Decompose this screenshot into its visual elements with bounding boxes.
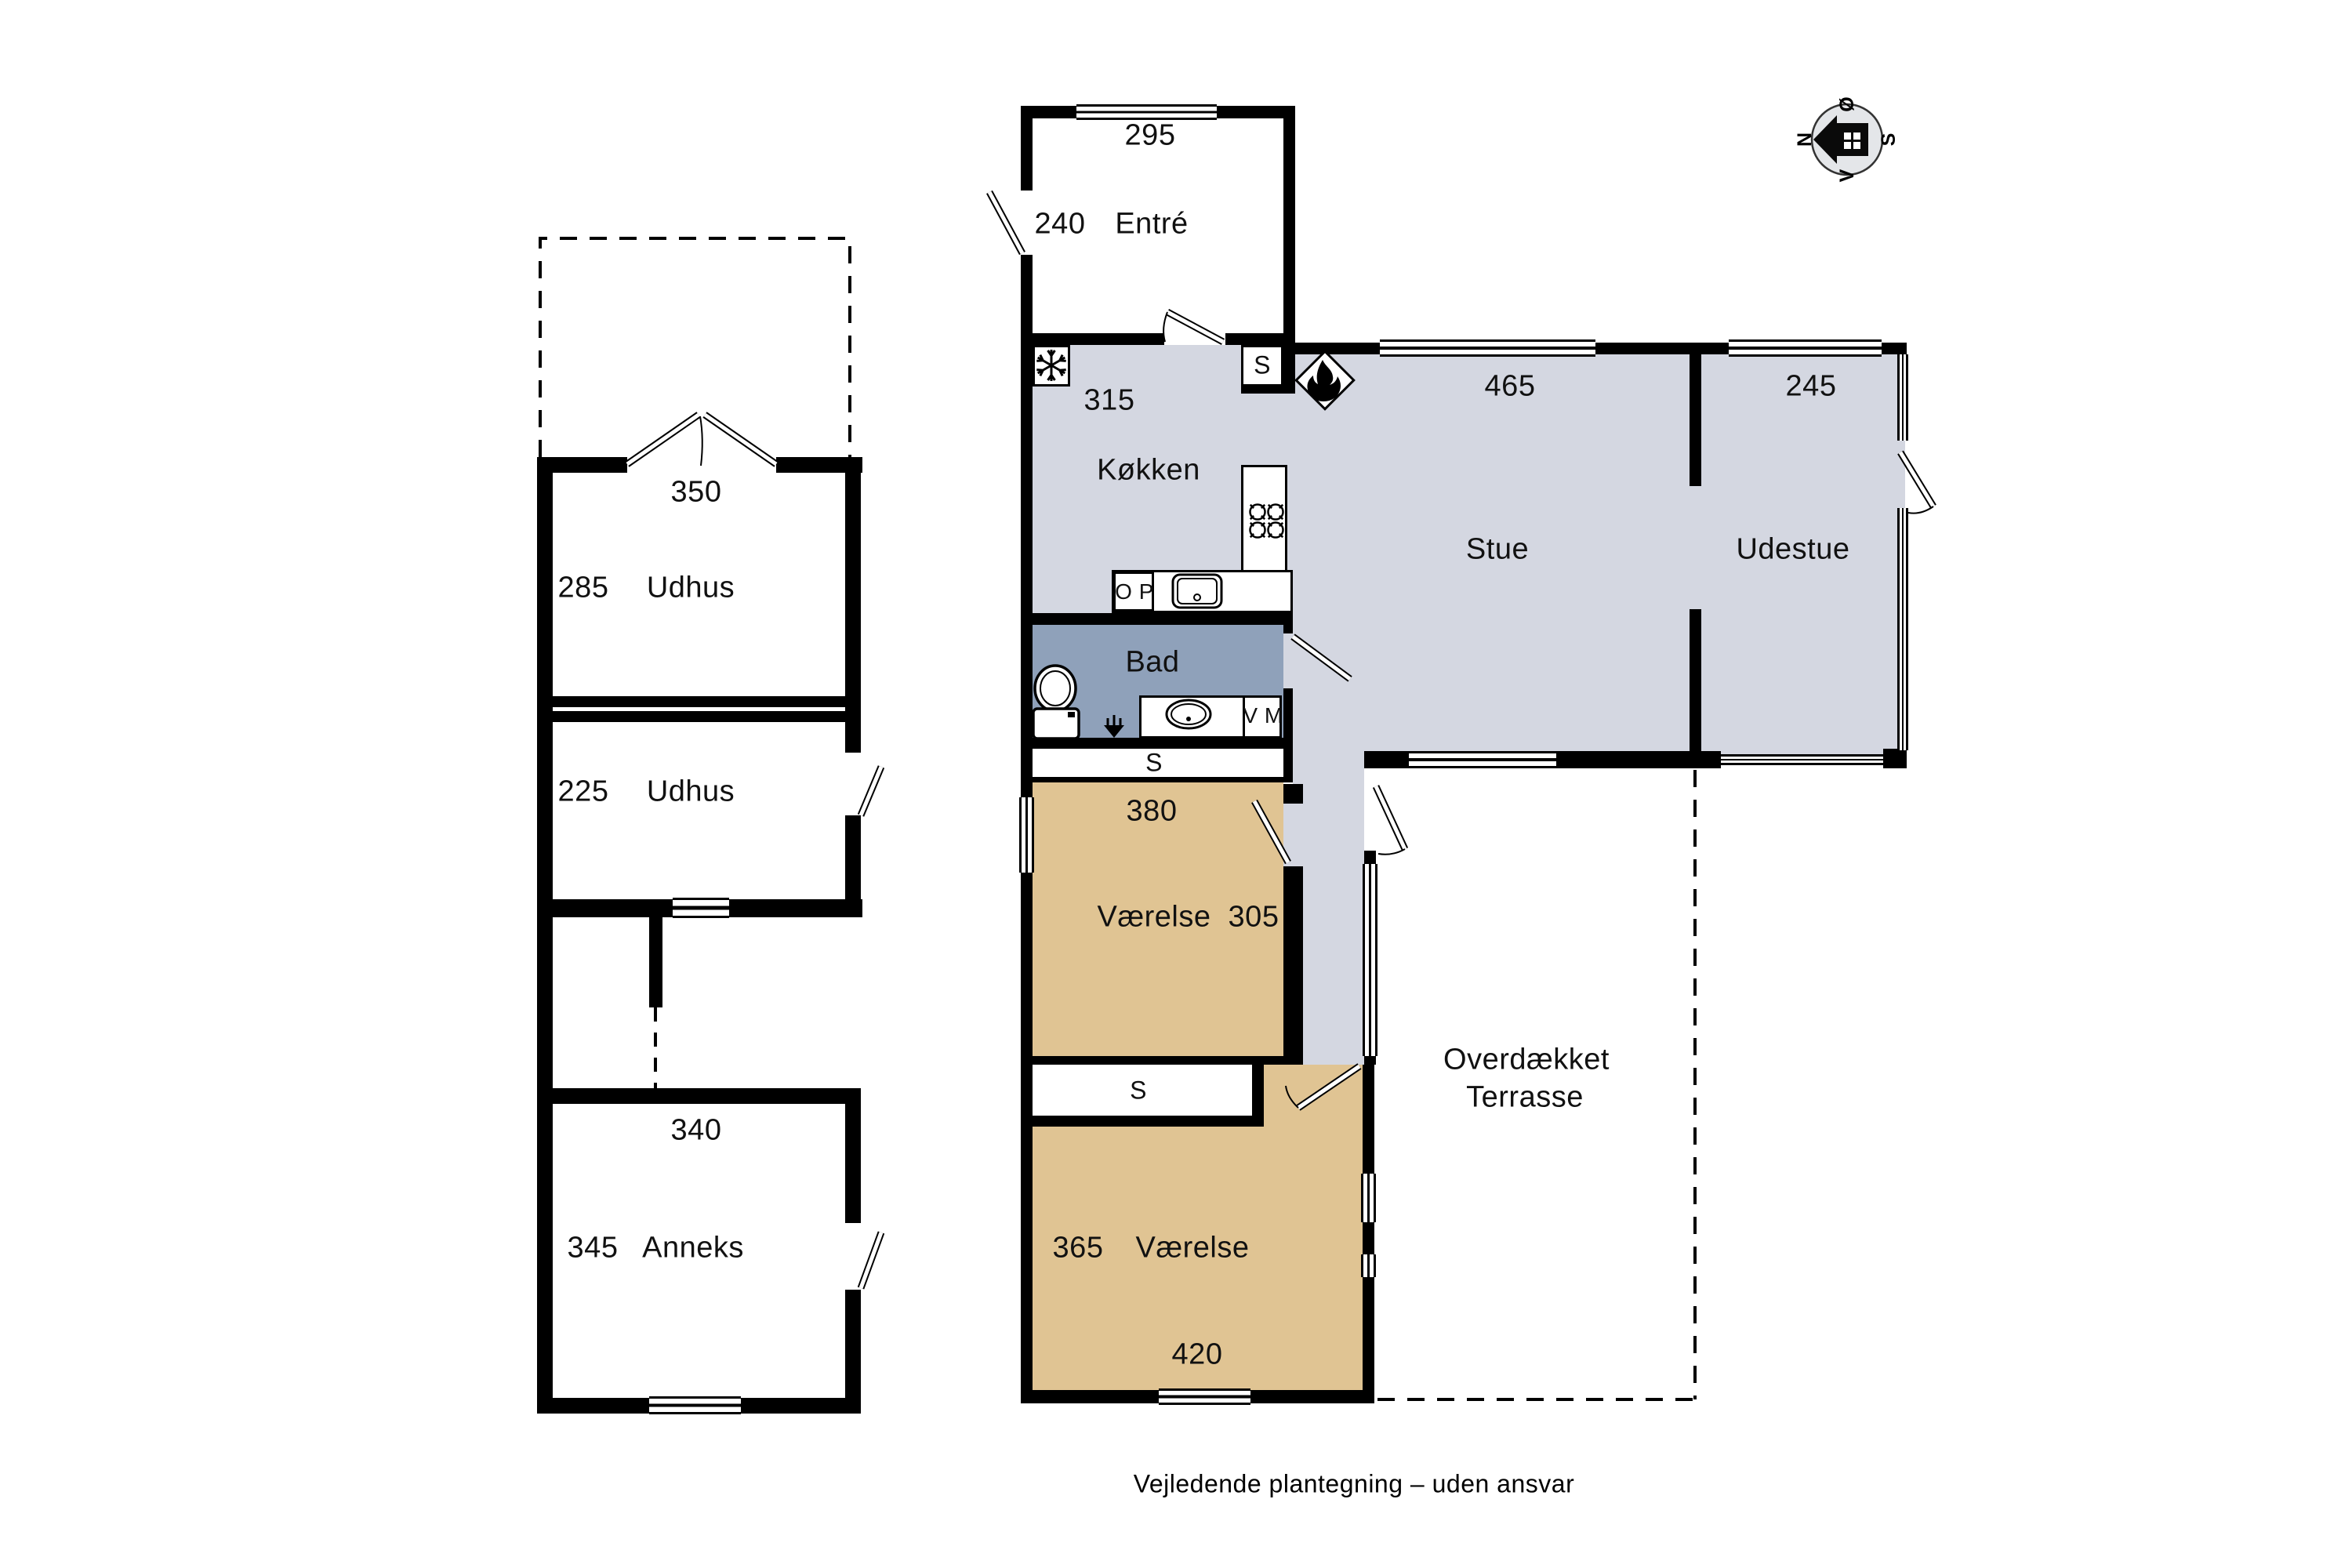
koekken-width-label: 315 <box>1084 384 1135 418</box>
vaerelse1-door-opening <box>1283 804 1303 866</box>
wall-segment <box>1283 784 1303 804</box>
dashed-carport-outline <box>540 238 850 457</box>
wall-segment <box>1021 333 1164 345</box>
terrasse-label-line1: Overdækket <box>1443 1044 1610 1077</box>
floor-hall <box>1293 625 1364 1065</box>
wall-segment <box>845 1290 861 1414</box>
entre-width-label: 295 <box>1125 119 1176 153</box>
terrasse-label-line2: Terrasse <box>1466 1081 1584 1115</box>
anneks-width-label: 340 <box>671 1114 722 1148</box>
stue-name-label: Stue <box>1466 533 1529 567</box>
wall-segment <box>1252 1065 1264 1116</box>
wall-segment <box>1250 1390 1374 1403</box>
wall-segment <box>1364 851 1376 864</box>
wall-segment <box>1283 866 1303 1056</box>
compass-south-letter: S <box>1878 133 1900 147</box>
wall-segment <box>1021 777 1293 782</box>
oven-label: O P <box>1115 579 1154 604</box>
floor-plan: 295 240 Entré 315 Køkken 465 Stue 245 Ud… <box>0 0 2352 1568</box>
wall-segment <box>1021 873 1033 1403</box>
window <box>1361 1254 1376 1277</box>
window <box>1159 1388 1250 1405</box>
window <box>1363 864 1377 1056</box>
bad-name-label: Bad <box>1125 646 1179 680</box>
compass-west-letter: V <box>1836 169 1858 182</box>
wall-segment <box>1021 106 1033 191</box>
wall-segment <box>1556 751 1690 768</box>
plan-caption: Vejledende plantegning – uden ansvar <box>1134 1470 1574 1499</box>
wall-segment <box>1363 1276 1374 1403</box>
wall-segment <box>1882 343 1907 354</box>
udhus1-depth-label: 285 <box>558 572 609 605</box>
compass-north-letter: N <box>1794 132 1816 147</box>
anneks-depth-label: 345 <box>568 1232 619 1265</box>
window <box>1076 104 1217 120</box>
wall-segment <box>1283 343 1380 354</box>
wall-segment <box>1883 749 1907 768</box>
closet-kitchen-label: S <box>1254 351 1271 380</box>
vaerelse1-width-label: 380 <box>1127 795 1178 829</box>
wall-segment <box>1595 343 1729 354</box>
stue-width-label: 465 <box>1485 370 1536 404</box>
window <box>1019 797 1034 873</box>
wall-segment <box>1690 609 1701 751</box>
window <box>673 898 729 918</box>
wall-segment <box>1283 688 1293 780</box>
compass-east-letter: Ø <box>1836 96 1858 111</box>
window <box>1721 754 1883 765</box>
udestue-width-label: 245 <box>1786 370 1837 404</box>
entre-depth-label: 240 <box>1035 208 1086 241</box>
wall-segment <box>845 1088 861 1223</box>
wall-segment <box>1690 354 1701 486</box>
compass-house-arrow <box>1813 115 1868 164</box>
wall-segment <box>1686 751 1721 768</box>
wall-segment <box>845 457 861 753</box>
window <box>1729 339 1882 357</box>
wall-segment <box>649 917 662 1007</box>
freezer-box <box>1033 345 1070 387</box>
wall-segment <box>1283 625 1293 633</box>
window <box>1409 751 1556 768</box>
wall-segment <box>537 899 673 917</box>
wall-segment <box>1021 1056 1303 1065</box>
wall-segment <box>537 1088 861 1104</box>
udestue-name-label: Udestue <box>1736 533 1849 567</box>
wall-segment <box>1363 1065 1374 1174</box>
window <box>1380 339 1595 357</box>
wall-segment <box>729 899 862 917</box>
window <box>1897 354 1908 441</box>
udhus2-name-label: Udhus <box>647 775 735 809</box>
washing-machine-label: V M <box>1243 703 1283 728</box>
wall-segment <box>537 1398 649 1414</box>
wall-segment <box>1363 1221 1374 1254</box>
koekken-name-label: Køkken <box>1097 454 1200 488</box>
udhus1-name-label: Udhus <box>647 572 735 605</box>
wall-segment <box>741 1398 861 1414</box>
vaerelse1-depth-label: 305 <box>1229 901 1279 935</box>
wall-segment <box>1364 751 1409 768</box>
wall-segment <box>1021 1116 1264 1127</box>
wall-segment <box>553 711 845 722</box>
window <box>1897 508 1908 750</box>
wall-segment <box>1021 613 1293 625</box>
wall-segment <box>1241 387 1283 394</box>
window <box>649 1396 741 1414</box>
wall-segment <box>1021 106 1076 118</box>
bad-door-opening <box>1283 633 1293 688</box>
wall-segment <box>553 696 845 707</box>
vaerelse2-depth-label: 365 <box>1053 1232 1104 1265</box>
vaerelse2-name-label: Værelse <box>1136 1232 1250 1265</box>
udhus1-width-label: 350 <box>671 476 722 510</box>
wall-segment <box>1021 738 1293 749</box>
wall-segment <box>1021 1390 1159 1403</box>
udhus2-depth-label: 225 <box>558 775 609 809</box>
anneks-name-label: Anneks <box>642 1232 744 1265</box>
compass-icon: N Ø S V <box>1794 96 1900 182</box>
wall-segment <box>1364 1056 1376 1065</box>
window <box>1361 1174 1376 1222</box>
closet-1-label: S <box>1145 749 1163 778</box>
vaerelse2-width-label: 420 <box>1172 1338 1223 1372</box>
closet-2-label: S <box>1130 1076 1147 1105</box>
wall-segment <box>537 457 553 1414</box>
vaerelse1-name-label: Værelse <box>1098 901 1211 935</box>
entre-name-label: Entré <box>1115 208 1188 241</box>
